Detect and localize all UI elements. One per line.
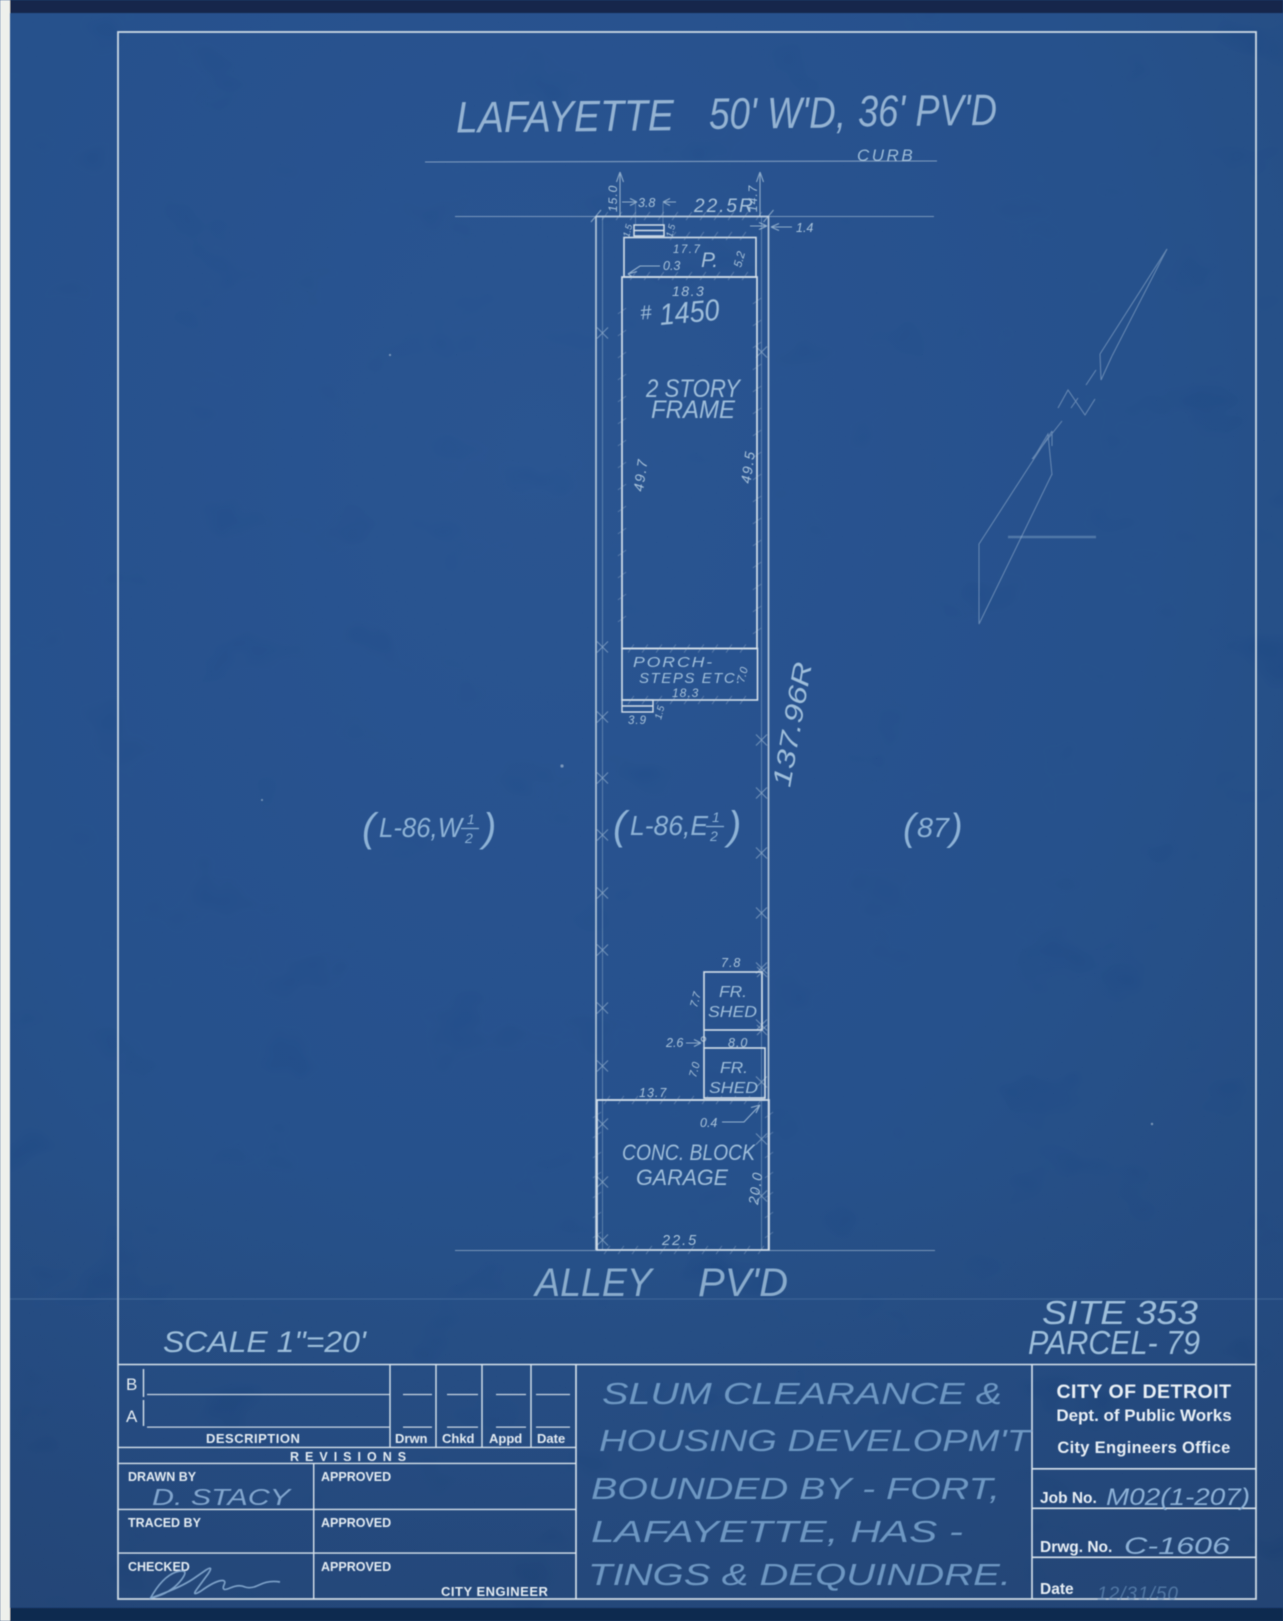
- svg-text:City Engineers Office: City Engineers Office: [1057, 1439, 1230, 1457]
- svg-text:3.9: 3.9: [628, 715, 647, 727]
- svg-text:GARAGE: GARAGE: [636, 1165, 728, 1190]
- svg-text:L-86,W: L-86,W: [379, 812, 464, 843]
- svg-text:2.6: 2.6: [665, 1036, 683, 1050]
- svg-text:Job No.: Job No.: [1040, 1490, 1097, 1507]
- svg-text:PORCH-: PORCH-: [633, 655, 714, 671]
- svg-text:APPROVED: APPROVED: [321, 1516, 391, 1530]
- svg-text:17.7: 17.7: [673, 244, 701, 256]
- svg-text:C-1606: C-1606: [1124, 1533, 1231, 1560]
- svg-text:FR.: FR.: [720, 1060, 748, 1077]
- svg-text:FR.: FR.: [719, 984, 747, 1001]
- svg-text:SLUM CLEARANCE &: SLUM CLEARANCE &: [602, 1376, 1002, 1411]
- svg-text:50' W'D,: 50' W'D,: [709, 88, 847, 138]
- svg-text:Drwn: Drwn: [395, 1431, 428, 1446]
- svg-text:P.: P.: [701, 249, 718, 272]
- svg-text:APPROVED: APPROVED: [321, 1560, 391, 1574]
- svg-text:B: B: [126, 1375, 137, 1394]
- svg-text:L-86,E: L-86,E: [630, 810, 708, 841]
- svg-text:#: #: [639, 302, 653, 325]
- svg-text:SHED: SHED: [708, 1004, 757, 1021]
- svg-text:REVISIONS: REVISIONS: [290, 1450, 412, 1464]
- svg-text:TINGS & DEQUINDRE.: TINGS & DEQUINDRE.: [588, 1557, 1011, 1592]
- svg-text:SHED: SHED: [709, 1080, 758, 1097]
- svg-text:CONC. BLOCK: CONC. BLOCK: [622, 1140, 756, 1165]
- svg-text:TRACED BY: TRACED BY: [128, 1516, 202, 1530]
- svg-text:A: A: [126, 1407, 138, 1426]
- svg-text:LAFAYETTE, HAS -: LAFAYETTE, HAS -: [591, 1514, 963, 1549]
- svg-text:1: 1: [712, 809, 720, 825]
- svg-text:CHECKED: CHECKED: [128, 1560, 190, 1574]
- svg-text:7.8: 7.8: [721, 956, 741, 970]
- svg-text:0.3: 0.3: [663, 259, 680, 273]
- svg-text:CITY ENGINEER: CITY ENGINEER: [441, 1584, 549, 1599]
- svg-text:Appd: Appd: [489, 1431, 522, 1446]
- svg-text:1: 1: [467, 811, 475, 827]
- svg-text:D. STACY: D. STACY: [152, 1484, 292, 1510]
- svg-text:Date: Date: [537, 1431, 565, 1446]
- svg-text:APPROVED: APPROVED: [321, 1470, 391, 1484]
- svg-text:FRAME: FRAME: [651, 396, 735, 424]
- svg-text:22.5R: 22.5R: [693, 196, 755, 217]
- svg-text:15.0: 15.0: [606, 185, 620, 212]
- svg-text:12/31/50: 12/31/50: [1097, 1584, 1179, 1605]
- svg-text:87: 87: [917, 812, 950, 843]
- svg-text:Dept. of Public Works: Dept. of Public Works: [1056, 1406, 1231, 1425]
- svg-text:PARCEL- 79: PARCEL- 79: [1028, 1324, 1200, 1361]
- svg-text:DRAWN BY: DRAWN BY: [128, 1470, 197, 1484]
- svg-text:13.7: 13.7: [639, 1086, 667, 1100]
- svg-text:Drwg. No.: Drwg. No.: [1040, 1539, 1112, 1556]
- svg-text:LAFAYETTE: LAFAYETTE: [456, 91, 675, 142]
- svg-text:SCALE 1"=20': SCALE 1"=20': [163, 1326, 367, 1359]
- svg-text:DESCRIPTION: DESCRIPTION: [206, 1431, 300, 1446]
- svg-text:3.8: 3.8: [638, 196, 655, 210]
- svg-text:0.4: 0.4: [700, 1116, 717, 1130]
- svg-text:18.3: 18.3: [672, 686, 699, 700]
- svg-text:HOUSING DEVELOPM'T: HOUSING DEVELOPM'T: [599, 1423, 1033, 1458]
- svg-text:36' PV'D: 36' PV'D: [858, 86, 998, 136]
- svg-text:BOUNDED BY - FORT,: BOUNDED BY - FORT,: [591, 1471, 1000, 1506]
- svg-text:2: 2: [464, 830, 473, 846]
- svg-text:M02(1-207): M02(1-207): [1106, 1484, 1250, 1511]
- svg-text:STEPS ETC.: STEPS ETC.: [639, 671, 742, 687]
- svg-text:1450: 1450: [658, 294, 721, 332]
- svg-text:2: 2: [709, 828, 718, 844]
- svg-text:CURB: CURB: [857, 146, 915, 165]
- svg-text:CITY OF DETROIT: CITY OF DETROIT: [1056, 1381, 1231, 1403]
- svg-text:1.4: 1.4: [796, 221, 813, 235]
- svg-text:Date: Date: [1040, 1581, 1074, 1598]
- svg-text:Chkd: Chkd: [442, 1431, 475, 1446]
